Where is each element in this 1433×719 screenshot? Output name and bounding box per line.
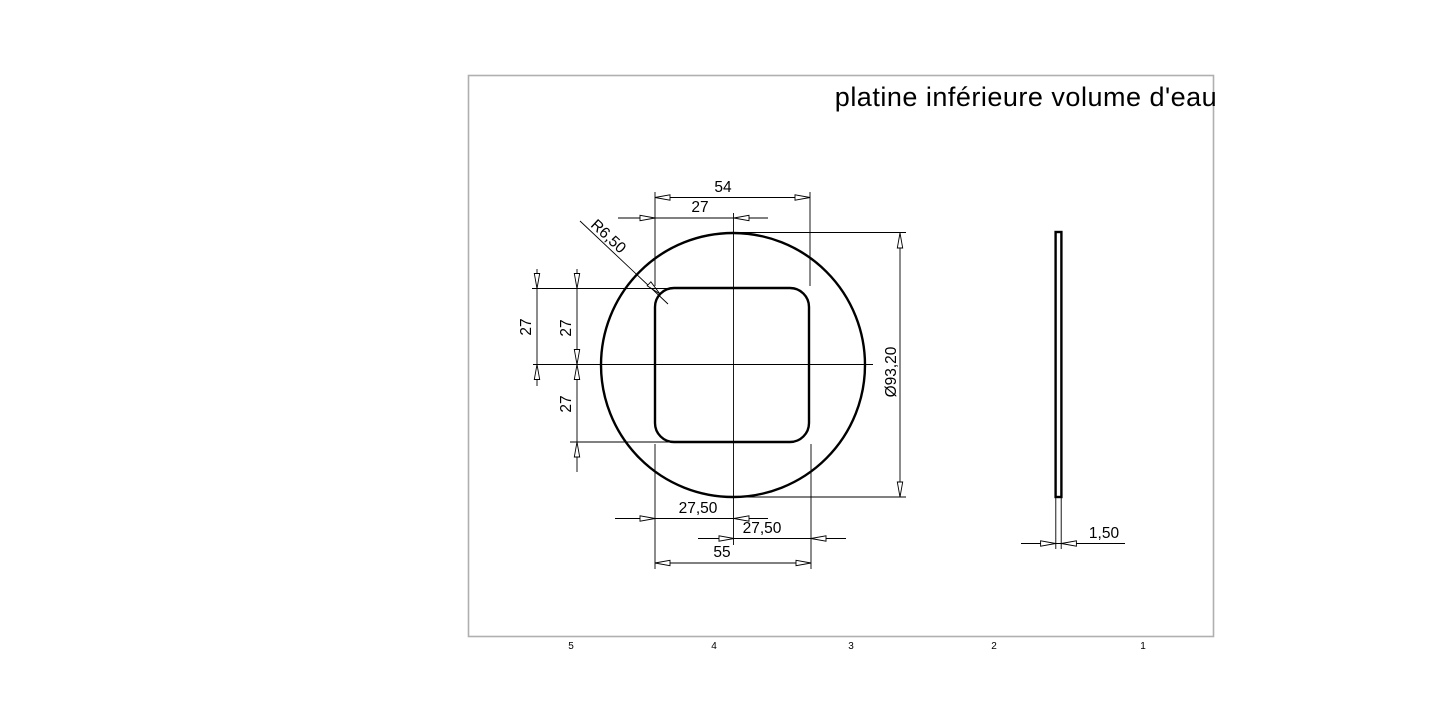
side-view: 1,50: [1021, 232, 1125, 549]
dim-label-top-width: 54: [714, 179, 732, 196]
dim-label-top-center: 27: [691, 199, 708, 216]
dim-label-corner-radius: R6,50: [587, 216, 629, 257]
dim-bottom-left-half: 27,50: [615, 500, 768, 521]
dim-label-bottom-left-half: 27,50: [679, 500, 718, 517]
plate-thickness-profile: [1056, 232, 1062, 497]
zone-label-4: 4: [711, 641, 717, 652]
zone-label-3: 3: [848, 641, 854, 652]
square-cutout: [655, 288, 809, 442]
dim-label-bottom-right-half: 27,50: [743, 520, 782, 537]
zone-label-1: 1: [1140, 641, 1146, 652]
zone-label-2: 2: [991, 641, 997, 652]
sheet-border: [469, 76, 1214, 637]
dim-bottom-width: 55: [655, 544, 811, 566]
dim-bottom-right-half: 27,50: [698, 520, 846, 541]
front-view: [533, 213, 873, 545]
plate-outline-circle: [601, 233, 865, 497]
drawing-title: platine inférieure volume d'eau: [835, 82, 1217, 112]
dim-top-center: 27: [618, 199, 768, 221]
zone-label-5: 5: [568, 641, 574, 652]
dim-label-left-offset: 27: [518, 318, 535, 335]
dim-label-left-lower: 27: [558, 395, 575, 412]
dim-label-diameter: Ø93,20: [883, 346, 900, 397]
dim-label-bottom-width: 55: [713, 544, 730, 561]
dim-label-left-upper: 27: [558, 319, 575, 336]
dim-label-thickness: 1,50: [1089, 525, 1120, 542]
zone-labels: 5 4 3 2 1: [568, 641, 1146, 652]
cad-drawing-page: platine inférieure volume d'eau 54 27 R6…: [0, 0, 1433, 719]
drawing-canvas: platine inférieure volume d'eau 54 27 R6…: [0, 0, 1433, 719]
